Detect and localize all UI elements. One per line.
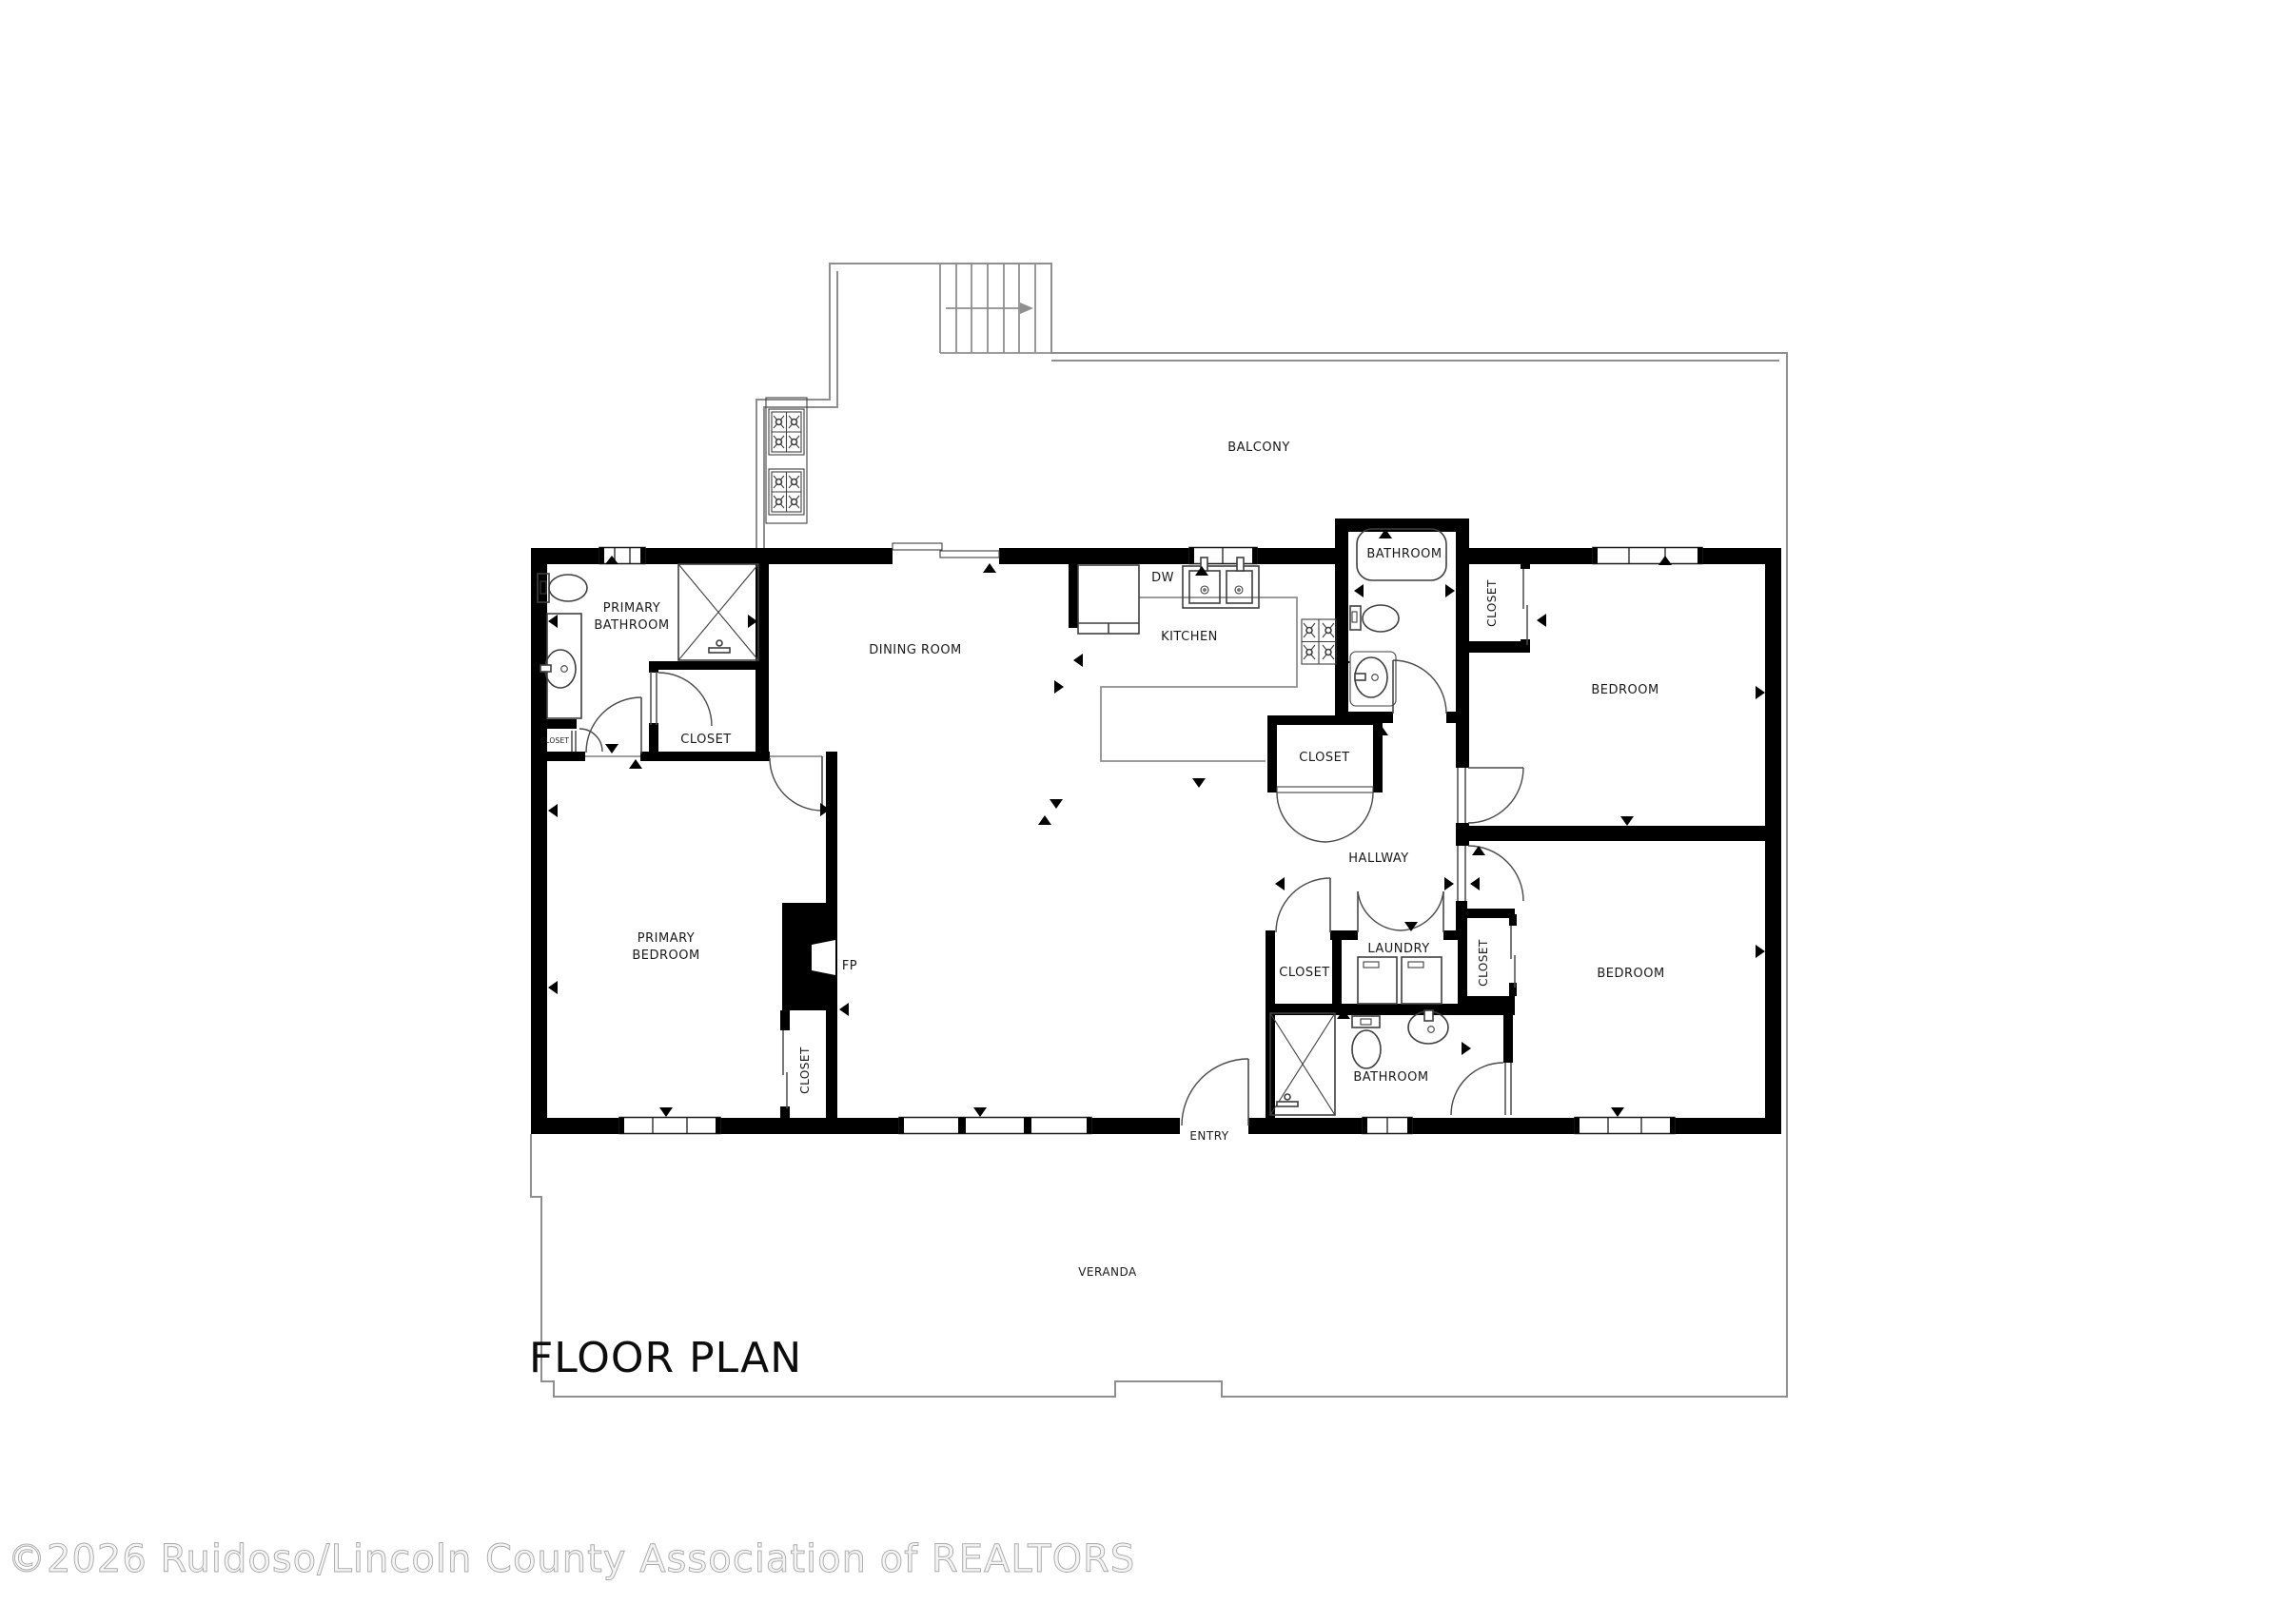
window: [899, 1118, 1091, 1134]
room-label-primary-bedroom-1: PRIMARY: [638, 931, 695, 946]
primary-bathroom-fixtures: [538, 564, 758, 718]
room-label-closet-laundry-left: CLOSET: [1279, 966, 1330, 980]
sink-icon: [1408, 1010, 1448, 1044]
room-label-bathroom-bottom: BATHROOM: [1353, 1070, 1428, 1085]
sink-icon: [1350, 652, 1396, 706]
grill-icon: [769, 469, 804, 515]
room-labels: BALCONY PRIMARY BATHROOM CLOSET CLOSET D…: [540, 440, 1665, 1279]
window: [1189, 548, 1257, 564]
balcony-grill-units: [766, 398, 807, 523]
room-label-closet-laundry-right: CLOSET: [1477, 939, 1490, 987]
shower-icon: [678, 564, 758, 660]
label-dishwasher: DW: [1151, 571, 1174, 585]
room-label-laundry: LAUNDRY: [1367, 942, 1429, 956]
page-title: FLOOR PLAN: [529, 1334, 802, 1382]
room-label-entry: ENTRY: [1189, 1129, 1228, 1143]
fireplace: [782, 903, 837, 1010]
room-label-hallway: HALLWAY: [1348, 851, 1408, 866]
refrigerator-icon: [1078, 565, 1139, 634]
window: [599, 548, 645, 564]
opening-markers: [548, 529, 1765, 1117]
room-label-bedroom1: BEDROOM: [1591, 683, 1658, 697]
room-label-kitchen: KITCHEN: [1161, 630, 1218, 644]
sink-icon: [540, 614, 581, 718]
bottom-bathroom-fixtures: [1270, 1010, 1448, 1115]
room-label-closet-fireplace: CLOSET: [798, 1047, 812, 1094]
staircase: [940, 264, 1051, 353]
grill-icon: [769, 409, 804, 455]
floor-plan-page: BALCONY PRIMARY BATHROOM CLOSET CLOSET D…: [0, 0, 2296, 1624]
room-label-veranda: VERANDA: [1078, 1265, 1137, 1279]
room-label-primary-bathroom-2: BATHROOM: [594, 618, 669, 633]
washer-icon: [1358, 957, 1397, 1004]
room-label-bedroom2: BEDROOM: [1597, 967, 1664, 981]
sliding-door-track: [893, 543, 999, 558]
watermark: ©2026 Ruidoso/Lincoln County Association…: [8, 1537, 1135, 1581]
stove-icon: [1302, 619, 1336, 664]
laundry-fixtures: [1358, 957, 1442, 1004]
room-label-primary-bedroom-2: BEDROOM: [632, 949, 699, 963]
label-fireplace: FP: [842, 959, 857, 973]
room-label-balcony: BALCONY: [1227, 440, 1290, 455]
double-sink-icon: [1183, 558, 1259, 608]
window: [1363, 1118, 1412, 1134]
kitchen-fixtures: [1078, 558, 1336, 761]
floor-plan-svg: BALCONY PRIMARY BATHROOM CLOSET CLOSET D…: [0, 0, 2296, 1624]
room-label-closet-primary: CLOSET: [680, 733, 732, 747]
room-label-bathroom-top: BATHROOM: [1366, 547, 1442, 561]
room-label-dining-room: DINING ROOM: [869, 643, 962, 657]
window: [619, 1118, 720, 1134]
stair-direction-arrow: [946, 303, 1033, 314]
room-label-primary-bathroom-1: PRIMARY: [603, 601, 660, 616]
dryer-icon: [1402, 957, 1442, 1004]
window: [1593, 548, 1702, 564]
shower-icon: [1270, 1013, 1335, 1115]
toilet-icon: [1352, 1016, 1381, 1068]
toilet-icon: [1350, 605, 1399, 632]
room-label-closet-bedroom1: CLOSET: [1485, 579, 1499, 627]
interior-walls: [531, 519, 1765, 1118]
room-label-closet-small: CLOSET: [540, 736, 570, 745]
room-label-closet-hall: CLOSET: [1299, 751, 1350, 765]
window: [1575, 1118, 1675, 1134]
